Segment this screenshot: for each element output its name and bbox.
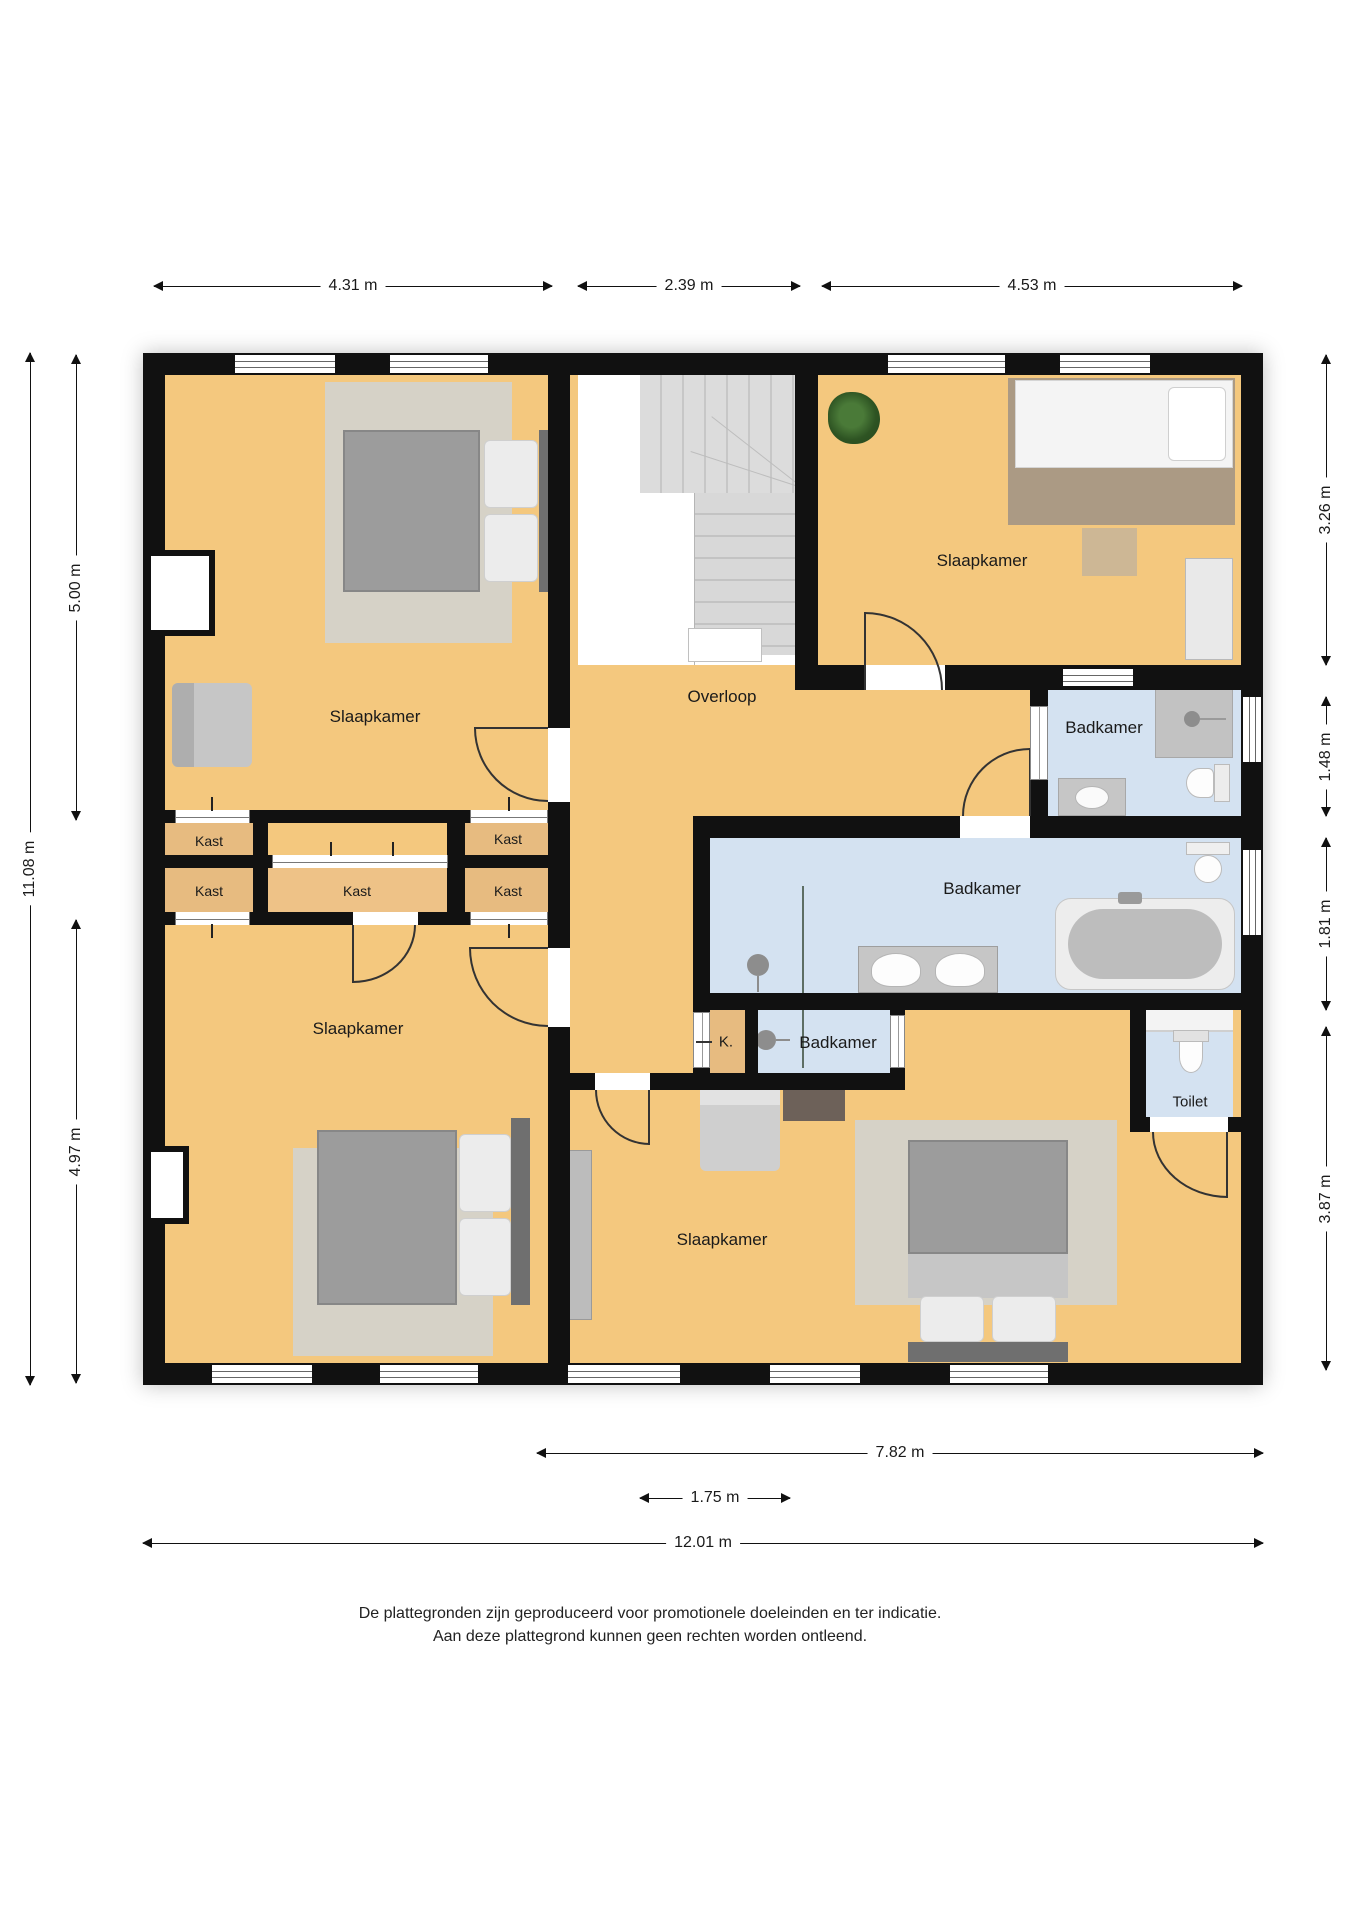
- doorway-frame: [1030, 706, 1048, 780]
- window: [235, 353, 335, 375]
- armchair: [172, 683, 252, 767]
- bed-duvet: [317, 1130, 457, 1305]
- window-niche: [145, 550, 215, 636]
- dimension-left-total: 11.08 m: [24, 353, 36, 1385]
- door-gap: [960, 816, 1030, 838]
- bed-sheet: [908, 1254, 1068, 1298]
- wall-closet-v2: [447, 810, 465, 925]
- wall-stairwell-right: [795, 353, 818, 665]
- bed-duvet: [343, 430, 480, 592]
- dimension-left-lower: 4.97 m: [70, 920, 82, 1383]
- disclaimer-line-1: De plattegronden zijn geproduceerd voor …: [0, 1602, 1300, 1625]
- door-leaf: [474, 727, 548, 729]
- mat-dark: [783, 1085, 845, 1121]
- door-gap: [595, 1073, 650, 1090]
- sink: [935, 953, 985, 987]
- double-bed: [908, 1140, 1068, 1362]
- room-label-bedroom-bottom-left: Slaapkamer: [313, 1019, 404, 1039]
- door-leaf: [352, 925, 354, 983]
- pillow: [484, 514, 538, 582]
- bathtub-faucet: [1118, 892, 1142, 904]
- room-label-bedroom-bottom: Slaapkamer: [677, 1230, 768, 1250]
- pillow: [992, 1296, 1056, 1342]
- pillow: [459, 1218, 511, 1296]
- floorplan-canvas: Slaapkamer Slaapkamer Slaapkamer Slaapka…: [0, 0, 1358, 1920]
- toilet-bowl: [1194, 855, 1222, 883]
- toilet-shelf: [1146, 1010, 1233, 1032]
- opening-tick: [392, 842, 394, 856]
- pillow: [484, 440, 538, 508]
- doorway-frame: [693, 1012, 710, 1068]
- shower-arm: [757, 976, 759, 992]
- double-bed: [343, 430, 555, 592]
- toilet-fixture: [1186, 764, 1232, 802]
- armchair-back: [172, 683, 194, 767]
- wall-bathroom-main-bottom: [693, 993, 1263, 1010]
- shower-head-icon: [1184, 711, 1200, 727]
- window: [1241, 850, 1263, 935]
- opening-tick: [508, 924, 510, 938]
- room-label-bathroom-small: Badkamer: [799, 1033, 876, 1053]
- room-label-bedroom-top-right: Slaapkamer: [937, 551, 1028, 571]
- shower-arm: [776, 1039, 790, 1041]
- window: [770, 1363, 860, 1385]
- dimension-right-4: 3.87 m: [1320, 1027, 1332, 1370]
- room-label-k: K.: [719, 1034, 733, 1051]
- toilet-bowl: [1179, 1041, 1203, 1073]
- room-label-bedroom-top-left: Slaapkamer: [330, 707, 421, 727]
- dimension-top-1: 4.31 m: [154, 280, 552, 292]
- armchair: [700, 1085, 780, 1171]
- headboard: [511, 1118, 530, 1305]
- window-interior: [1063, 667, 1133, 688]
- stairs-bottom-step: [688, 628, 762, 662]
- closet-label: Kast: [195, 833, 223, 849]
- dimension-top-2: 2.39 m: [578, 280, 800, 292]
- toilet-tank: [1214, 764, 1230, 802]
- window: [888, 353, 1005, 375]
- door-leaf: [864, 612, 866, 690]
- door-gap: [548, 948, 570, 1027]
- double-washbasin: [858, 946, 998, 993]
- sink: [1075, 786, 1109, 809]
- dimension-left-upper: 5.00 m: [70, 355, 82, 820]
- dimension-bottom-2: 1.75 m: [640, 1492, 790, 1504]
- dimension-bottom-3: 12.01 m: [143, 1537, 1263, 1549]
- opening-tick: [330, 842, 332, 856]
- sink: [871, 953, 921, 987]
- door-gap: [1150, 1117, 1228, 1132]
- window: [380, 1363, 478, 1385]
- opening-tick: [211, 924, 213, 938]
- closet-opening: [272, 855, 448, 868]
- doorway-frame: [890, 1015, 905, 1068]
- bed-duvet: [908, 1140, 1068, 1254]
- toilet-bowl: [1186, 768, 1214, 798]
- shower: [1155, 685, 1233, 758]
- single-bed: [1015, 380, 1233, 468]
- window: [212, 1363, 312, 1385]
- stairs-landing: [578, 493, 695, 665]
- closet-label: Kast: [343, 883, 371, 899]
- room-label-landing: Overloop: [688, 687, 757, 707]
- door-gap: [548, 728, 570, 802]
- wall-closet-v1: [253, 810, 268, 925]
- closet-label: Kast: [494, 883, 522, 899]
- shower-glass: [802, 886, 804, 993]
- shower-arm: [1200, 718, 1226, 720]
- wall-k-divider: [745, 1010, 758, 1073]
- door-leaf: [1226, 1132, 1228, 1198]
- dimension-right-2: 1.48 m: [1320, 697, 1332, 816]
- stairs-upper-treads: [640, 375, 795, 493]
- closet-opening: [175, 810, 250, 823]
- opening-tick: [211, 797, 213, 811]
- bathtub: [1055, 898, 1235, 990]
- dimension-top-3: 4.53 m: [822, 280, 1242, 292]
- bathtub-basin: [1068, 909, 1222, 979]
- disclaimer-line-2: Aan deze plattegrond kunnen geen rechten…: [0, 1625, 1300, 1648]
- mat: [1082, 528, 1137, 576]
- shower-head-icon: [747, 954, 769, 976]
- window: [1060, 353, 1150, 375]
- wall-toilet-left: [1130, 1010, 1146, 1117]
- pillow: [1168, 387, 1226, 461]
- toilet-tank: [1186, 842, 1230, 855]
- window: [1241, 697, 1263, 762]
- window-niche: [145, 1146, 189, 1224]
- double-bed: [317, 1118, 530, 1305]
- dimension-right-1: 3.26 m: [1320, 355, 1332, 665]
- room-label-toilet: Toilet: [1172, 1094, 1207, 1111]
- plant-icon: [828, 392, 880, 444]
- window: [950, 1363, 1048, 1385]
- door-leaf: [648, 1090, 650, 1145]
- washbasin-cabinet: [1058, 778, 1126, 816]
- opening-tick: [508, 797, 510, 811]
- room-label-bathroom-top: Badkamer: [1065, 718, 1142, 738]
- wall-outer-left: [143, 353, 165, 1385]
- pillow: [920, 1296, 984, 1342]
- closet-opening: [470, 810, 548, 823]
- k-leader-line: [696, 1041, 712, 1043]
- toilet-fixture: [1186, 842, 1230, 884]
- closet-label: Kast: [494, 831, 522, 847]
- dimension-right-3: 1.81 m: [1320, 838, 1332, 1010]
- window: [390, 353, 488, 375]
- door-leaf: [469, 947, 548, 949]
- closet-label: Kast: [195, 883, 223, 899]
- window: [568, 1363, 680, 1385]
- cabinet: [1185, 558, 1233, 660]
- room-label-bathroom-main: Badkamer: [943, 879, 1020, 899]
- shower-head-icon: [756, 1030, 776, 1050]
- dimension-bottom-1: 7.82 m: [537, 1447, 1263, 1459]
- door-gap: [353, 912, 418, 925]
- headboard: [908, 1342, 1068, 1362]
- pillow: [459, 1134, 511, 1212]
